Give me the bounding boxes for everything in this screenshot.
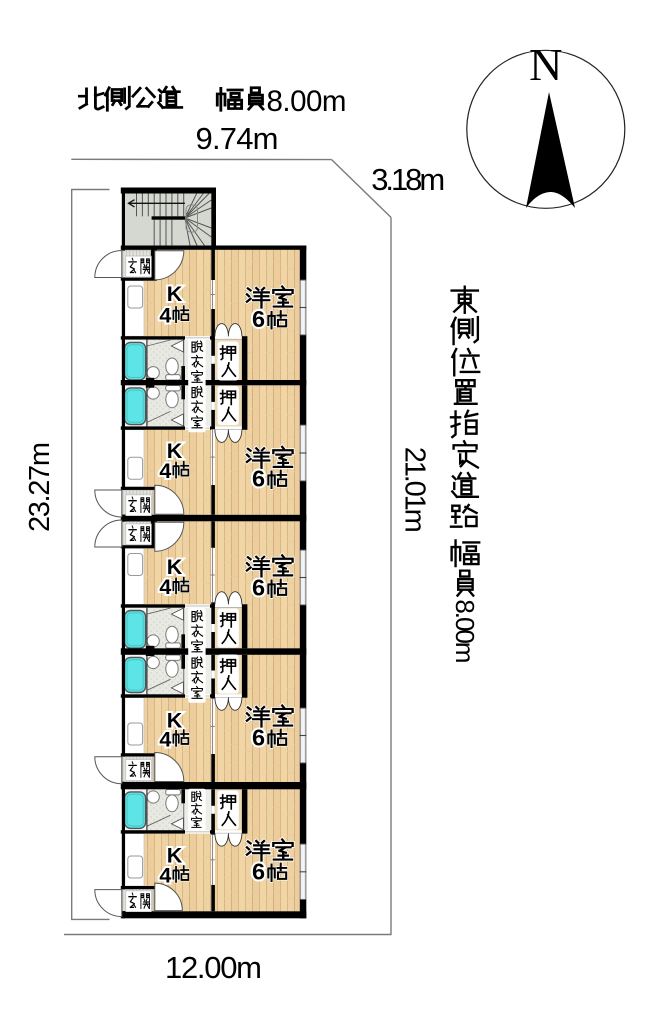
svg-text:6: 6: [252, 575, 265, 601]
svg-text:21.01m: 21.01m: [398, 447, 430, 533]
svg-text:4: 4: [159, 575, 171, 599]
svg-text:9.74m: 9.74m: [196, 121, 279, 156]
svg-text:N: N: [529, 39, 562, 90]
svg-text:4: 4: [159, 863, 171, 887]
svg-text:4: 4: [159, 727, 171, 751]
svg-text:4: 4: [159, 304, 171, 328]
svg-text:6: 6: [252, 725, 265, 751]
svg-text:3.18m: 3.18m: [371, 162, 445, 197]
svg-text:8.00m: 8.00m: [450, 599, 480, 663]
svg-text:8.00m: 8.00m: [267, 85, 347, 118]
svg-text:12.00m: 12.00m: [165, 950, 262, 985]
svg-text:6: 6: [252, 306, 265, 332]
svg-text:4: 4: [159, 459, 171, 483]
svg-text:6: 6: [252, 466, 265, 492]
svg-text:K: K: [167, 282, 183, 306]
svg-text:23.27m: 23.27m: [24, 442, 56, 532]
svg-text:6: 6: [252, 859, 265, 885]
